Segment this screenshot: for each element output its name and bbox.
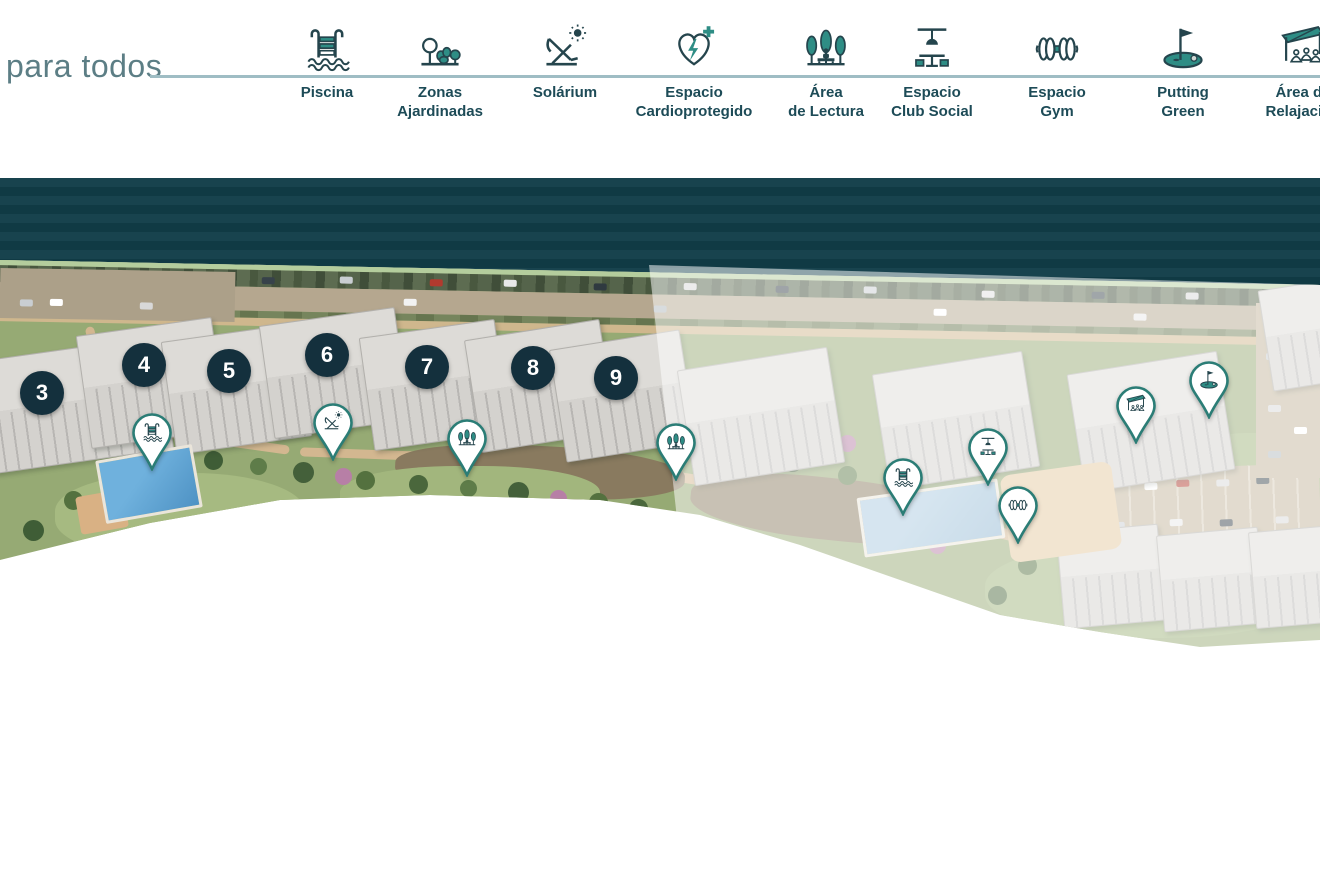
pool-icon	[891, 465, 915, 489]
cardio-icon	[628, 18, 760, 76]
legend-bottom-english: r everyone SwimmingPoolLandscapedAreasSo…	[0, 700, 1320, 895]
reading-icon	[455, 426, 479, 450]
legend-item-label: Solárium	[499, 83, 631, 102]
site-plan-page: para todos PiscinaZonasAjardinadasSolári…	[0, 0, 1320, 895]
left-parking-cars	[50, 299, 63, 306]
legend-item-solarium: Solárium	[499, 18, 631, 102]
social-icon	[976, 435, 1000, 459]
reading-map-pin[interactable]	[656, 423, 696, 481]
gym-icon	[991, 18, 1123, 76]
zen-icon	[1124, 393, 1148, 417]
social-map-pin[interactable]	[968, 428, 1008, 486]
legend-item-label: Área deRelajación	[1237, 83, 1320, 121]
zen-icon	[1237, 18, 1320, 76]
legend-item-cardio: EspacioCardioprotegido	[628, 18, 760, 121]
solarium-icon	[499, 18, 631, 76]
building-marker-8[interactable]: 8	[511, 346, 555, 390]
landscape-icon	[374, 18, 506, 76]
golf-icon	[1117, 18, 1249, 76]
social-icon	[866, 18, 998, 76]
legend-item-landscape: ZonasAjardinadas	[374, 18, 506, 121]
legend-item-social: EspacioClub Social	[866, 18, 998, 121]
building-marker-7[interactable]: 7	[405, 345, 449, 389]
legend-item-golf: PuttingGreen	[1117, 18, 1249, 121]
legend-item-label: PuttingGreen	[1117, 83, 1249, 121]
solarium-icon	[321, 410, 345, 434]
legend-item-zen: Área deRelajación	[1237, 18, 1320, 121]
pool-map-pin[interactable]	[883, 458, 923, 516]
zen-map-pin[interactable]	[1116, 386, 1156, 444]
reading-icon	[664, 430, 688, 454]
reading-map-pin[interactable]	[447, 419, 487, 477]
gym-icon	[1006, 493, 1030, 517]
legend-item-label: EspacioCardioprotegido	[628, 83, 760, 121]
top-left-parking	[0, 268, 235, 322]
road-cars	[404, 299, 417, 306]
legend-item-label: ZonasAjardinadas	[374, 83, 506, 121]
masterplan-map: 3456789	[0, 178, 1320, 718]
building-marker-3[interactable]: 3	[20, 371, 64, 415]
pool-icon	[140, 420, 164, 444]
legend-item-label: EspacioGym	[991, 83, 1123, 121]
solarium-map-pin[interactable]	[313, 403, 353, 461]
building-marker-6[interactable]: 6	[305, 333, 349, 377]
legend-item-label: EspacioClub Social	[866, 83, 998, 121]
golf-map-pin[interactable]	[1189, 361, 1229, 419]
pool-map-pin[interactable]	[132, 413, 172, 471]
gym-map-pin[interactable]	[998, 486, 1038, 544]
building-marker-4[interactable]: 4	[122, 343, 166, 387]
golf-icon	[1197, 368, 1221, 392]
legend-top-title: para todos	[6, 48, 162, 85]
legend-top-spanish: para todos PiscinaZonasAjardinadasSolári…	[0, 0, 1320, 150]
building-marker-9[interactable]: 9	[594, 356, 638, 400]
legend-item-gym: EspacioGym	[991, 18, 1123, 121]
building-marker-5[interactable]: 5	[207, 349, 251, 393]
